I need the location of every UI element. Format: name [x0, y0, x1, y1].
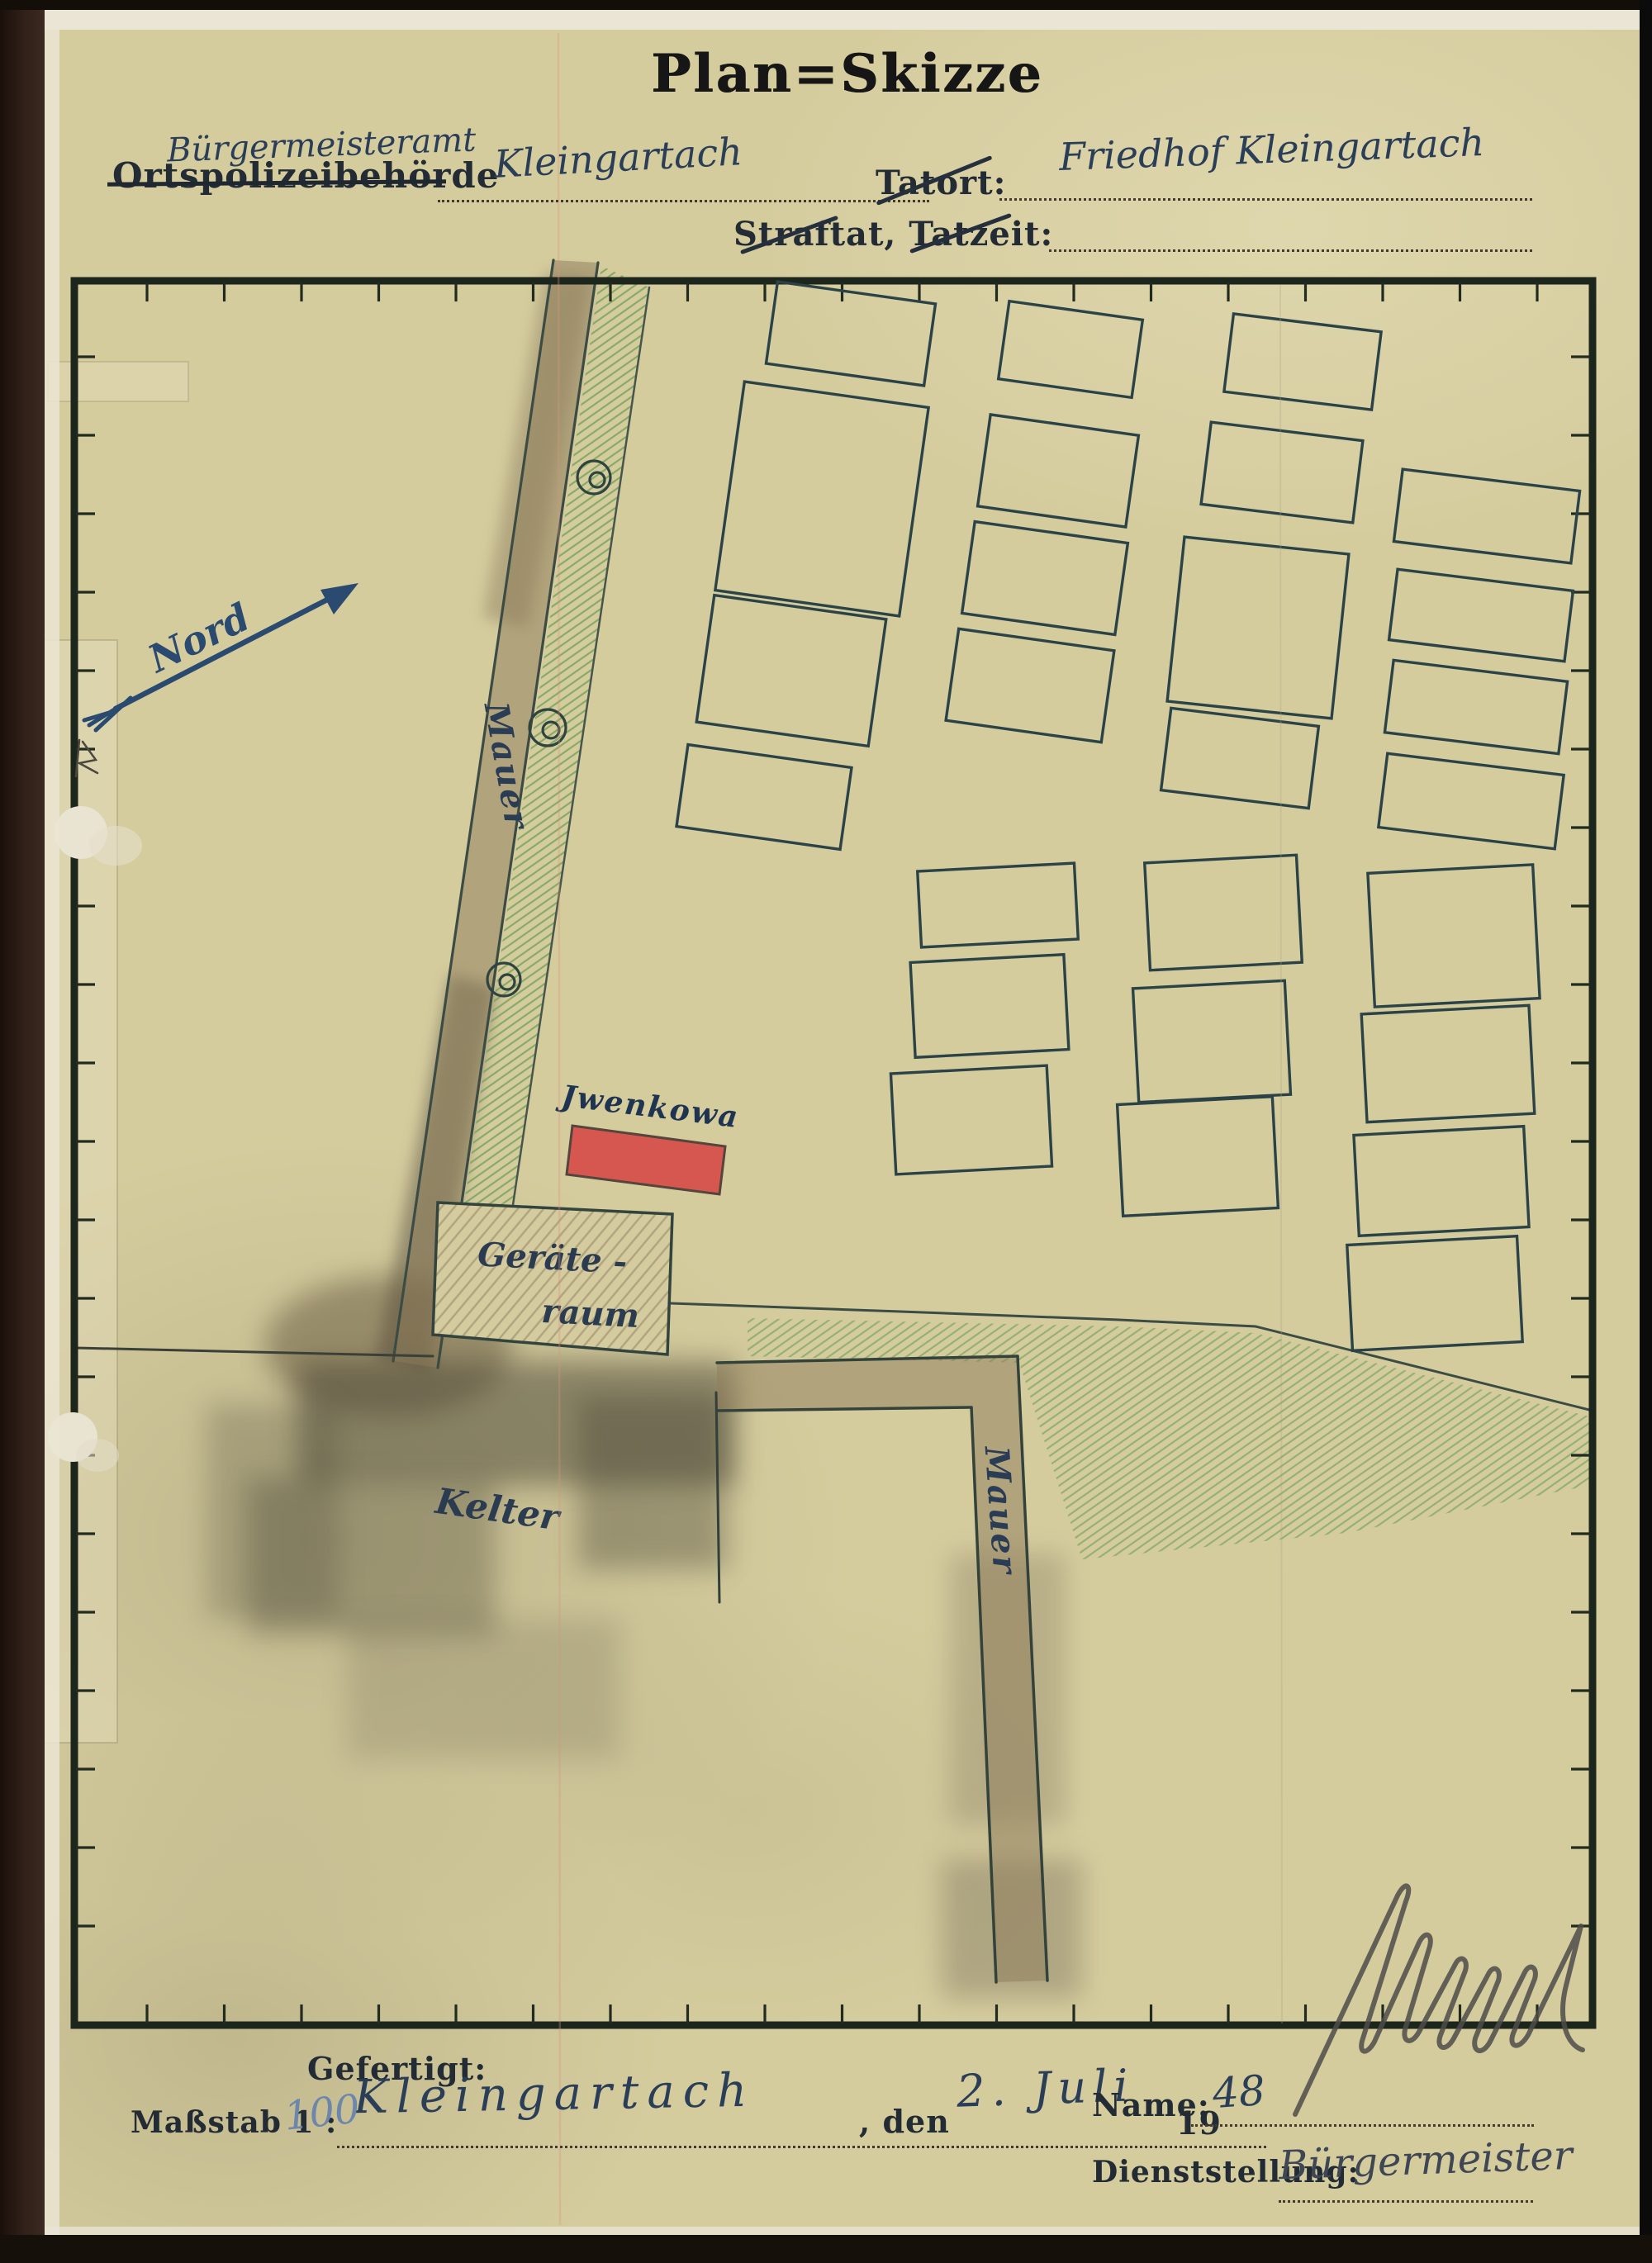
grave-plot — [1133, 980, 1291, 1102]
dienststellung-value: Bürgermeister — [1278, 2136, 1573, 2185]
scan-edge-top — [0, 0, 1652, 10]
tape-strip-small — [48, 362, 188, 401]
grave-plot — [962, 522, 1128, 635]
dienststellung-dotted-line — [1279, 2200, 1533, 2203]
grave-plots — [676, 282, 1580, 1350]
kelter-shading — [347, 1619, 619, 1759]
scan-edge-bottom — [0, 2235, 1652, 2263]
grave-plot — [978, 415, 1139, 527]
straftat-dotted-line — [1049, 249, 1532, 252]
grave-plot — [946, 629, 1114, 742]
signature-scrawl — [1295, 1886, 1583, 2114]
name-label: Name: — [1092, 2090, 1210, 2121]
grave-plot — [999, 301, 1143, 398]
grave-plot — [1384, 660, 1567, 753]
document-title: Plan=Skizze — [651, 48, 1043, 101]
kelter-shading — [206, 1404, 339, 1619]
shed-label-line2: raum — [540, 1292, 640, 1336]
massstab-value: 100 — [282, 2089, 362, 2136]
grave-plot — [1389, 569, 1574, 661]
scan-edge-right — [1640, 0, 1652, 2263]
grave-plot — [1224, 314, 1381, 410]
footer-place-value: Kleingartach — [354, 2068, 756, 2121]
grave-plot — [1379, 753, 1564, 849]
scan-edge-bottom-white — [45, 2227, 1640, 2235]
grave-plot — [1354, 1127, 1529, 1236]
punch-hole — [76, 1439, 119, 1472]
grave-plot — [1167, 537, 1349, 719]
name-dotted-line — [1191, 2124, 1534, 2127]
date-dotted-line — [337, 2146, 1266, 2148]
shed-label-line1: Geräte - — [477, 1235, 628, 1281]
scan-edge-left-white — [45, 0, 59, 2263]
grave-plot — [1145, 855, 1303, 970]
grave-plot — [1161, 708, 1319, 808]
den-label: , den — [859, 2106, 950, 2137]
grave-plot — [910, 955, 1069, 1058]
grave-plot — [715, 382, 928, 616]
scan-edge-top-white — [45, 10, 1640, 30]
tatort-dotted-line — [999, 198, 1532, 201]
grave-plot — [1347, 1236, 1522, 1351]
walls-and-lines — [76, 260, 1593, 1982]
year-written: 48 — [1211, 2070, 1266, 2114]
paper-crease — [1280, 285, 1282, 2023]
grave-plot — [1361, 1005, 1535, 1122]
kelter-shading — [578, 1396, 727, 1569]
grave-plot — [1368, 865, 1540, 1007]
punch-hole — [89, 826, 142, 866]
map-frame — [74, 281, 1593, 2025]
hedge-band — [748, 1318, 1593, 1559]
grave-plot — [1393, 469, 1579, 563]
north-arrow-head — [320, 583, 358, 614]
grave-plot — [676, 745, 852, 850]
scan-edge-left — [0, 0, 45, 2263]
scanned-document-page: Nord Mauer Mauer Jwenkowa Geräte - raum … — [0, 0, 1652, 2263]
grave-plot — [1201, 422, 1363, 523]
plan-sketch-drawing: Nord Mauer Mauer Jwenkowa Geräte - raum … — [0, 0, 1652, 2263]
grave-plot — [890, 1065, 1051, 1174]
office-printed-label: Ortspolizeibehörde — [112, 159, 499, 193]
scale-ticks — [76, 282, 1590, 2023]
marked-grave-red — [567, 1126, 725, 1194]
grave-plot — [1118, 1097, 1279, 1217]
office-dotted-line — [438, 200, 929, 202]
grave-plot — [766, 282, 935, 386]
grave-plot — [918, 863, 1079, 947]
grave-plot — [696, 595, 886, 747]
